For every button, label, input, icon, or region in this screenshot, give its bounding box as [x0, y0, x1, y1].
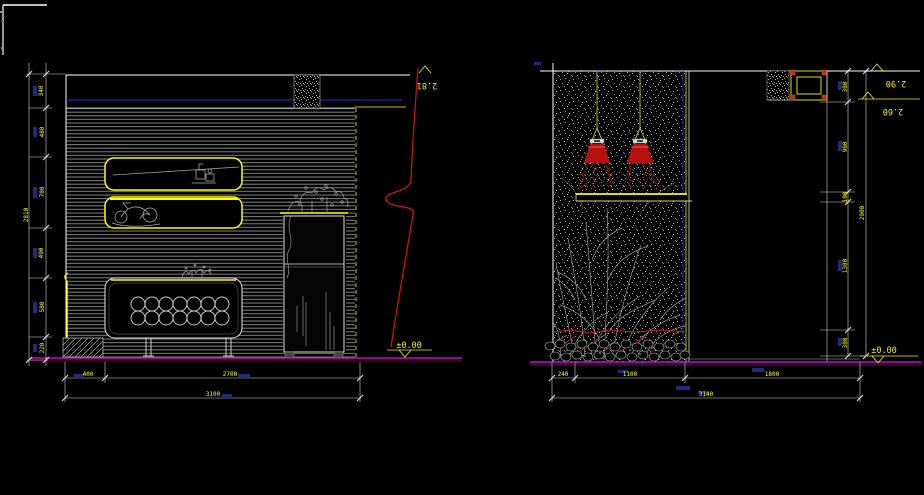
elevation-triangle-icon [419, 66, 431, 73]
cad-drawing-canvas: 2.81 ±0.00 [0, 0, 924, 495]
ghost-dim-smudges [33, 86, 37, 352]
ghost-dim-smudges [838, 81, 842, 346]
elevation-value-shelf[interactable]: 2.60 [883, 106, 903, 116]
elevation-marker-floor[interactable]: ±0.00 [387, 341, 432, 357]
dim-value: 300 [842, 81, 849, 92]
dim-value: 100 [842, 191, 849, 202]
dim-value: 220 [39, 342, 46, 353]
ceiling-beam-section[interactable] [294, 75, 320, 108]
elevation-triangle-icon [871, 64, 883, 71]
break-line[interactable] [386, 68, 418, 347]
dim-value: 480 [39, 126, 46, 137]
dim-value: 900 [842, 141, 849, 152]
elevation-value-top[interactable]: 2.90 [886, 78, 906, 88]
dim-total-value: 2900 [859, 205, 866, 220]
left-elevation: 2.81 ±0.00 [23, 63, 462, 402]
dim-value: 400 [83, 371, 94, 378]
cabinet-leg [285, 352, 294, 358]
elevation-marker-top[interactable]: 2.81 [417, 66, 437, 90]
right-bottom-dim-values[interactable]: 240 1100 1800 3140 [558, 371, 780, 398]
dim-value: 300 [842, 337, 849, 348]
left-vertical-dim-chain[interactable] [26, 63, 66, 366]
dim-value: 1300 [842, 258, 849, 273]
frame-detail-outer [791, 71, 827, 100]
elevation-value-top[interactable]: 2.81 [417, 80, 437, 90]
dim-value: 700 [39, 186, 46, 197]
dim-total-value: 3100 [206, 391, 221, 398]
dim-value: 1100 [623, 371, 638, 378]
dim-total-value: 2810 [23, 207, 30, 222]
elevation-triangle-icon [399, 350, 411, 357]
dim-value: 240 [558, 371, 569, 378]
elevation-value-floor[interactable]: ±0.00 [871, 346, 897, 356]
cabinet-leg [334, 352, 343, 358]
cad-drawing: 2.81 ±0.00 [0, 0, 924, 495]
wall-shelf[interactable] [576, 193, 692, 201]
elevation-value-floor[interactable]: ±0.00 [396, 341, 422, 351]
left-vertical-dim-values[interactable]: 340 480 700 490 580 220 2810 [23, 85, 46, 353]
dim-value: 340 [38, 85, 45, 96]
right-elevation: 300 900 100 1300 300 2900 2.90 2.60 ±0.0… [530, 62, 921, 402]
ceiling-detail-section[interactable] [767, 70, 827, 100]
ghost-dim-smudges [618, 368, 764, 394]
elevation-triangle-icon [862, 92, 874, 99]
left-bottom-dim-values[interactable]: 400 2700 3100 [83, 371, 238, 398]
dim-value: 2700 [223, 371, 238, 378]
dim-value: 1800 [765, 371, 780, 378]
ghost-label [534, 62, 541, 65]
dim-value: 490 [38, 247, 45, 258]
hatched-block-section [767, 71, 789, 100]
elevation-marker-top[interactable]: 2.90 [871, 64, 906, 88]
dim-total-value: 3140 [699, 391, 714, 398]
elevation-marker-floor[interactable]: ±0.00 [860, 346, 918, 363]
right-vertical-dim-values[interactable]: 300 900 100 1300 300 2900 [842, 81, 866, 348]
elevation-marker-shelf[interactable]: 2.60 [858, 92, 920, 116]
dim-value: 580 [39, 301, 46, 312]
lamp-base-hatched [63, 338, 103, 357]
display-niche-lower[interactable] [105, 197, 242, 228]
display-niche-upper[interactable] [105, 158, 242, 190]
crosshair-cursor [0, 5, 47, 55]
